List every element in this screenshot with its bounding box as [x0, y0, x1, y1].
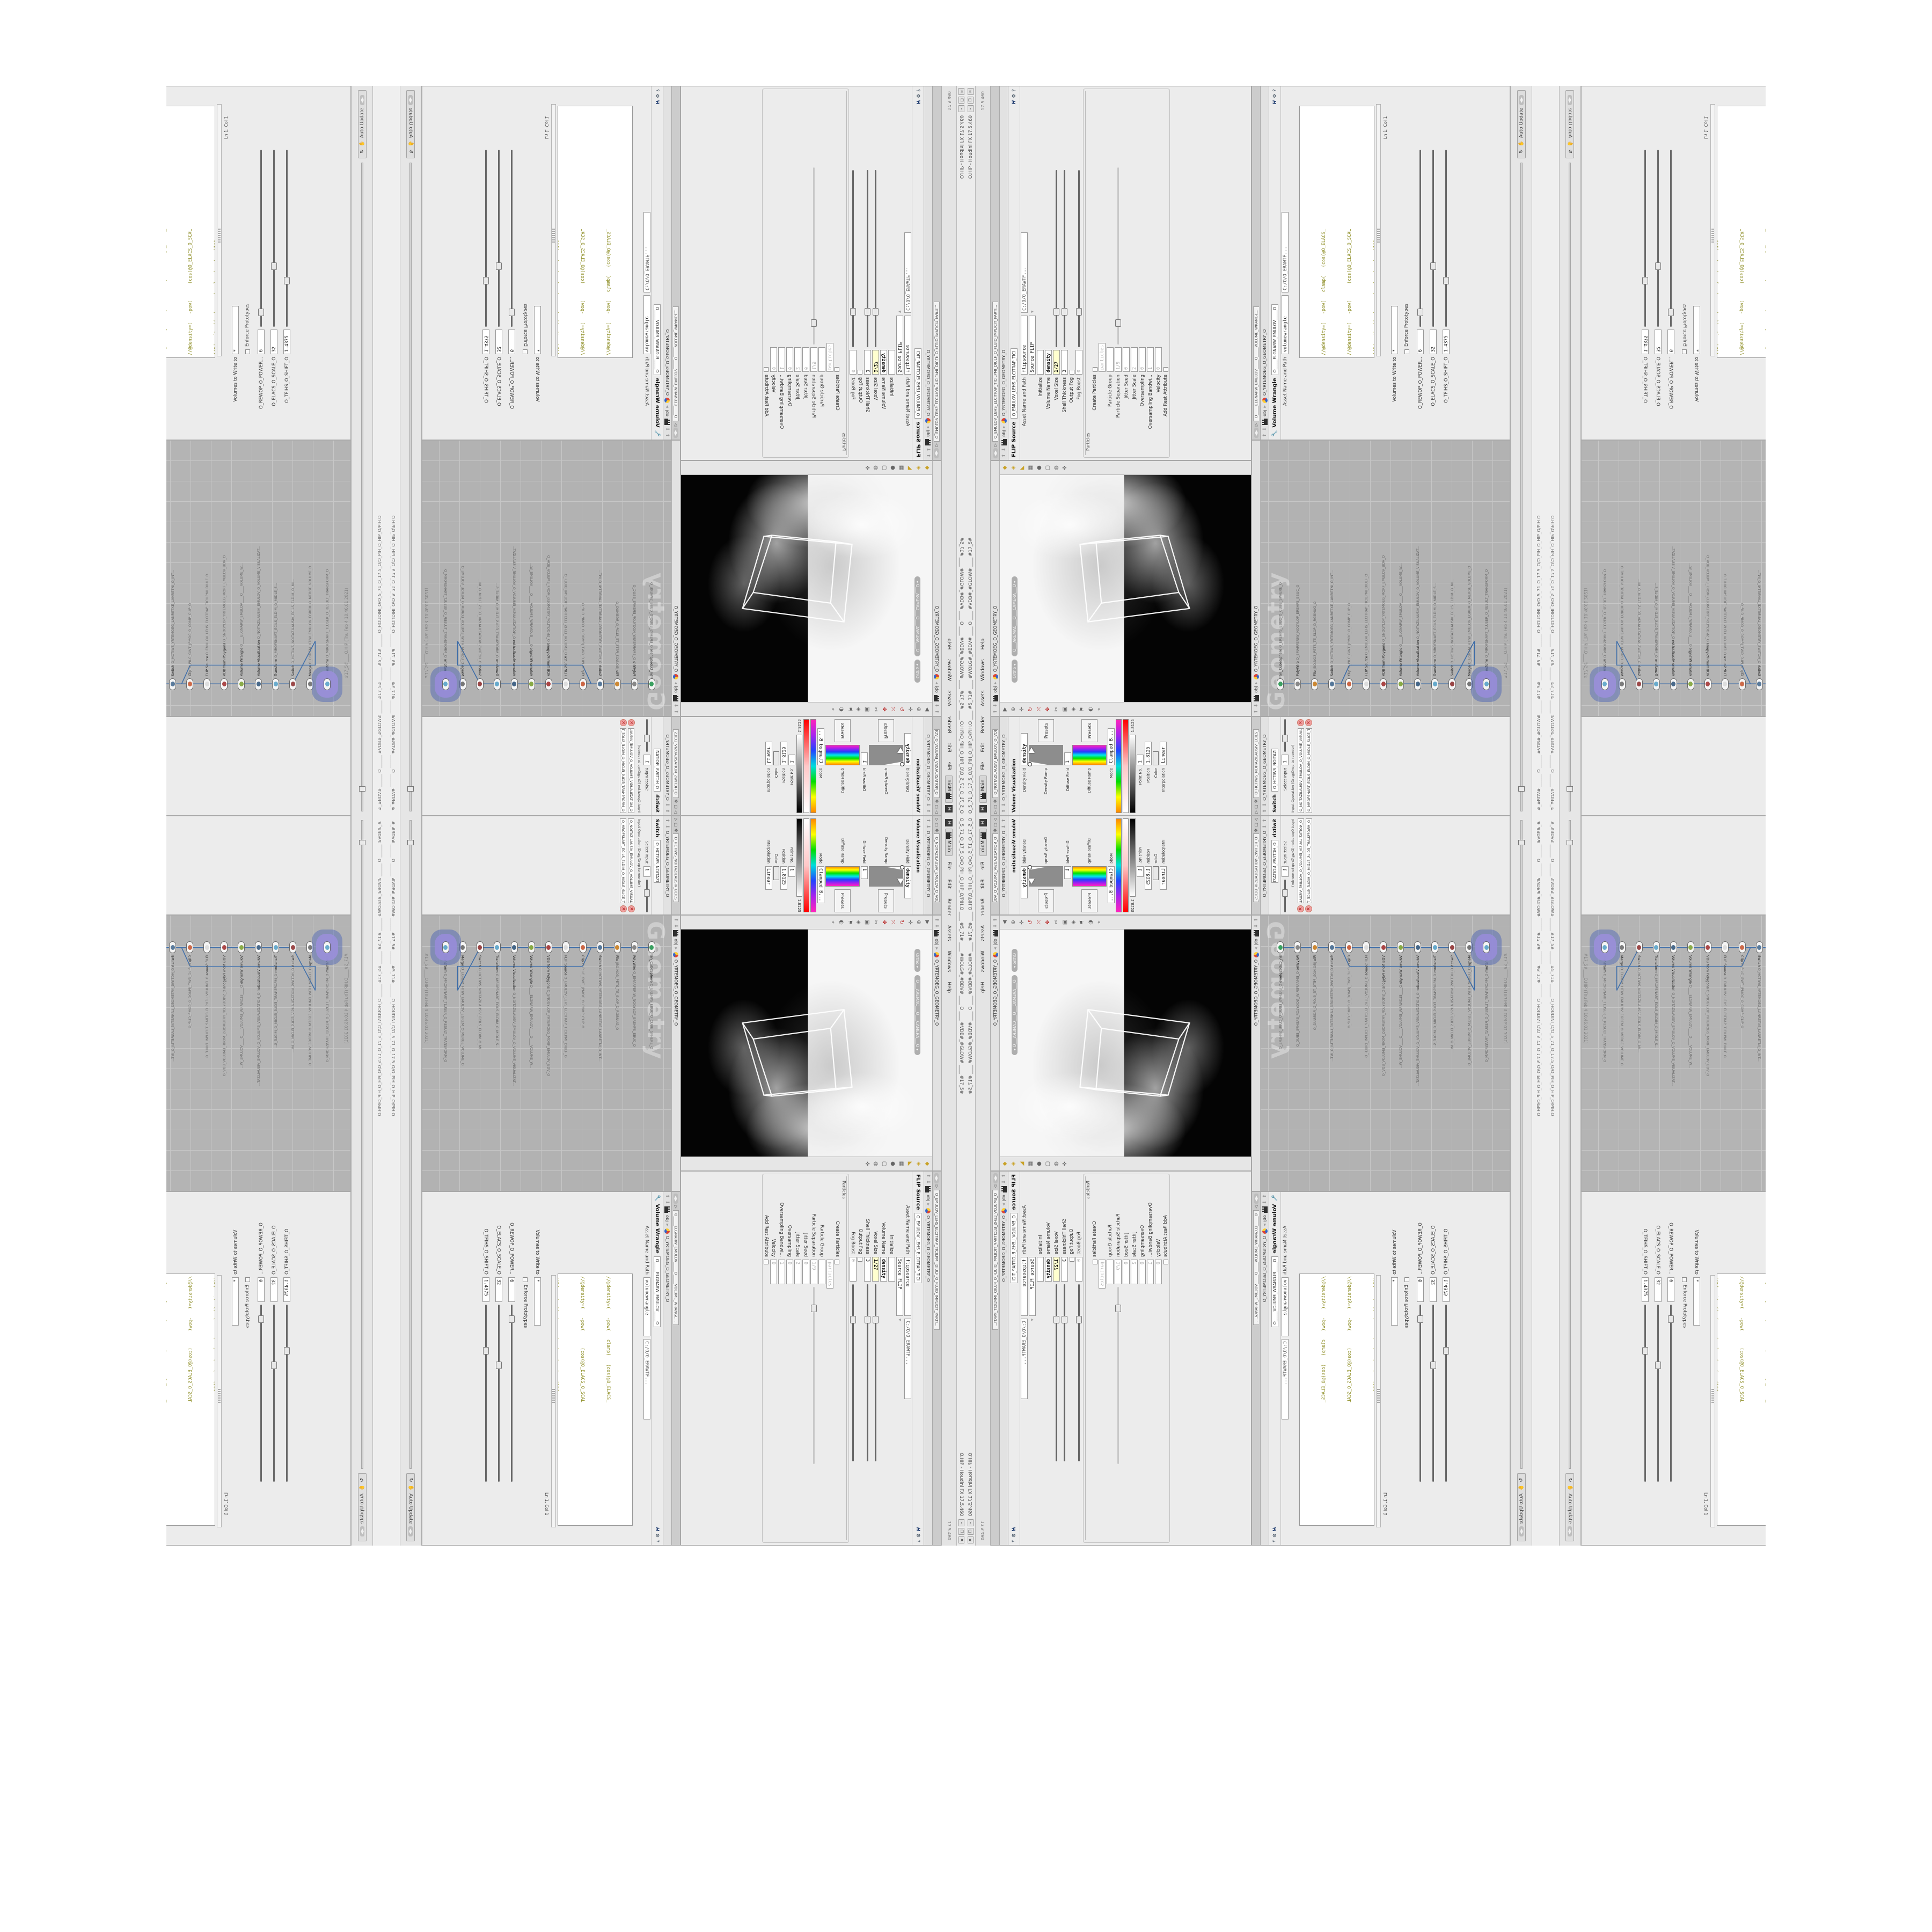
particles-section-label[interactable]: Particles [1085, 91, 1091, 455]
viz-path[interactable]: O_YRTEMOEG_O_GEOMETRY_O [926, 734, 931, 800]
param-value-field[interactable]: 0 [1123, 1260, 1130, 1284]
network-node[interactable]: Switch O_HCTIWS_YRTEMOEG_LANRETXE_LANRET… [169, 941, 176, 1062]
viewport-tool-icon[interactable]: ✥ [881, 920, 887, 924]
timeline-handle[interactable] [359, 786, 365, 792]
desktop-selector[interactable]: Main [979, 829, 987, 856]
window-button[interactable]: ✕ [958, 1536, 964, 1543]
node-shape[interactable] [203, 678, 210, 690]
viewport-tool-icon[interactable]: ▣ [1062, 707, 1068, 712]
node-shape[interactable] [272, 941, 279, 953]
menu-item[interactable]: File [946, 758, 953, 773]
shift-slider[interactable] [286, 1305, 288, 1482]
param-value-field[interactable]: 1/9 [810, 347, 817, 372]
switch-path[interactable]: O_YRTEMOEG_O_GEOMETRY_O [665, 831, 670, 897]
network-node[interactable]: Switch O_HCTIWS_NOITAZILAUSIV_ECILS_ELDI… [1636, 579, 1643, 690]
flip-crumb-root[interactable]: obj [1001, 1195, 1006, 1201]
network-node[interactable]: Transform O_MROFSNART_TLUSER_O_RESULT_TR… [1483, 569, 1490, 690]
asset-name-field[interactable]: flipsource [904, 1257, 911, 1316]
position-value[interactable]: 1.8125 [1145, 866, 1152, 890]
help-icon[interactable]: ? [655, 89, 660, 92]
density-field-value[interactable]: density [1021, 866, 1028, 898]
gear-icon[interactable]: ⚙ [655, 1533, 660, 1538]
pane-play-icon[interactable]: ▷ [674, 423, 679, 426]
viewport-display-icon[interactable]: ◆ [924, 466, 930, 470]
auto-update-button[interactable]: ↻ ✋ Auto Update ◀▶ [1566, 90, 1575, 158]
switch-input-name[interactable]: O_NOITAZILAUSIV_EMULOV_O_VOLUME_VISUALIZ… [1298, 728, 1304, 813]
network-node[interactable]: VDB from Polygons O_SNOGYLOP_YRTEMOEG_MO… [221, 555, 228, 690]
viewport-tool-icon[interactable]: ⚑ [1079, 920, 1085, 925]
ortho-pill[interactable]: Ortho ▾ [1012, 949, 1018, 972]
viewport-display-icon[interactable]: ◍ [1053, 465, 1059, 470]
timeline-slider[interactable] [361, 163, 363, 811]
switch-input-name[interactable]: O_NOITAZILAUSIV_EMULOV_O_VOLUME_VISUALIZ… [1298, 818, 1304, 903]
param-value-field[interactable]: 0 [1075, 350, 1082, 375]
wrangle-crumb-root[interactable]: obj [1262, 410, 1267, 416]
timeline-slider[interactable] [1520, 820, 1523, 1469]
diffuse-field-value[interactable]: 1 [1064, 752, 1071, 765]
delete-input-icon[interactable]: ✕ [620, 719, 627, 726]
network-canvas[interactable]: Geometry an_CubeSphere O_EREHPS_EBUC_O_C… [422, 916, 671, 1191]
network-node[interactable]: Transform O_MROFSNART_TLUSER_O_RESULT_TR… [324, 941, 331, 1062]
shift-slider[interactable] [286, 150, 288, 327]
timeline-handle[interactable] [1567, 786, 1574, 792]
viewport-display-icon[interactable]: ● [890, 465, 896, 470]
wrangle-header-tab[interactable]: O_____ELGNARW_EMULOV_____O [654, 304, 661, 375]
network-node[interactable]: Switch O_HCTIWS_YRTEMOEG_LANRETXE_LANRET… [169, 570, 176, 690]
up-arrow-icon[interactable]: ⬆ [934, 918, 940, 922]
gear-icon[interactable]: ⚙ [916, 94, 921, 98]
viewport-display-icon[interactable]: ◆ [924, 1162, 930, 1166]
viewport-tool-icon[interactable]: ◐ [1088, 707, 1094, 712]
param-value-field[interactable]: 0 [802, 1260, 809, 1284]
node-shape[interactable] [1670, 941, 1677, 953]
asset-name-field[interactable]: flipsource [1021, 1257, 1028, 1316]
vex-code-editor[interactable]: //@density=( -pow( clamp( (cos(@O_ELACS_… [558, 106, 633, 358]
network-node[interactable]: Clip O_PILC_GWT_JPMOC_O_COMP_CLIP_O [580, 941, 587, 1028]
network-node[interactable]: Clip O_PILC_GWT_JPMOC_O_COMP_CLIP_O [1739, 941, 1746, 1028]
param-value-field[interactable]: density [1045, 1257, 1052, 1282]
delete-input-icon[interactable]: ✕ [1297, 719, 1304, 726]
network-node[interactable]: PolyWire O_EMARFERIW_NOGYLOP_EREHPS_EBUC… [631, 585, 638, 691]
viewport-tool-icon[interactable]: ▶ [1002, 920, 1008, 925]
shift-slider[interactable] [485, 150, 487, 327]
node-shape[interactable] [562, 941, 569, 953]
diffuse-presets-button[interactable]: Presets [1081, 719, 1097, 742]
param-value-field[interactable]: 1 [1147, 347, 1154, 372]
network-node[interactable]: Clip O_PILC_GWT_JPMOC_O_COMP_CLIP_O [1345, 941, 1352, 1028]
viewport-tool-icon[interactable]: ⊕ [916, 707, 921, 711]
power-value[interactable]: 6 [1667, 330, 1674, 354]
node-shape[interactable] [511, 941, 518, 953]
node-shape[interactable] [1687, 678, 1694, 690]
code-scrollbar[interactable] [551, 104, 556, 356]
power-slider[interactable] [511, 1305, 513, 1482]
pane-link-pill[interactable]: ◀▶ [993, 448, 998, 458]
viewport-tool-icon[interactable]: ✛ [907, 707, 913, 711]
up-arrow-icon[interactable]: ⬆ [993, 918, 998, 922]
wrangle-crumb-root[interactable]: obj [665, 410, 670, 416]
auto-update-button[interactable]: ↻ ✋ Auto Update ◀▶ [358, 90, 367, 158]
enforce-checkbox[interactable] [1682, 349, 1687, 354]
help-icon[interactable]: ? [916, 89, 921, 92]
viewport-tool-icon[interactable]: ⤧ [890, 920, 896, 925]
point-value[interactable]: 1 [788, 866, 795, 877]
help-icon[interactable]: ? [1272, 89, 1278, 92]
desktop-selector[interactable]: Main [946, 776, 953, 803]
viewport-tool-icon[interactable]: ▣ [1062, 920, 1068, 925]
viewport-tool-icon[interactable]: ⊕ [1011, 920, 1016, 924]
param-value-field[interactable]: 1/27 [872, 1257, 879, 1282]
viewport-tool-icon[interactable]: ⚑ [847, 707, 853, 712]
network-node[interactable]: PolyWire O_EMARFERIW_NOGYLOP_EREHPS_EBUC… [1294, 941, 1301, 1047]
node-shape[interactable] [614, 941, 621, 953]
pane-move-icon[interactable]: ✥ [1254, 800, 1259, 803]
scale-slider[interactable] [1657, 150, 1659, 327]
down-arrow-icon[interactable]: ⬇ [1001, 825, 1007, 829]
gradient-grayscale[interactable] [796, 735, 802, 814]
viewport-tool-icon[interactable]: ⌖ [1096, 708, 1102, 711]
down-arrow-icon[interactable]: ⬇ [926, 1180, 931, 1184]
node-shape[interactable] [1636, 941, 1643, 953]
viz-pane-tab[interactable]: O_NOITAZILAUSIV_EMULOV_O_VOLUME_VISUALIZ… [992, 833, 998, 902]
delete-input-icon[interactable]: ✕ [1297, 905, 1304, 912]
viewport-tool-icon[interactable]: ↻ [898, 920, 904, 924]
node-shape[interactable] [169, 678, 176, 690]
timeline-slider[interactable] [361, 820, 363, 1469]
up-arrow-icon[interactable]: ⬆ [1254, 918, 1259, 922]
viewport-tool-icon[interactable]: ⤧ [1036, 920, 1042, 925]
diffuse-presets-button[interactable]: Presets [1081, 889, 1097, 912]
position-value[interactable]: 1.8125 [780, 866, 787, 890]
param-slider[interactable] [1064, 170, 1065, 347]
switch-path[interactable]: O_YRTEMOEG_O_GEOMETRY_O [1262, 734, 1267, 800]
shift-value[interactable]: 1.4375 [1642, 1277, 1649, 1302]
density-field-value[interactable]: density [904, 866, 911, 898]
gradient-rainbow[interactable] [810, 818, 816, 912]
scale-slider[interactable] [273, 150, 275, 327]
down-arrow-icon[interactable]: ⬇ [674, 704, 679, 708]
param-value-field[interactable] [1107, 1260, 1114, 1284]
window-button[interactable]: – [958, 1519, 964, 1526]
pane-play-icon[interactable]: ▷ [993, 810, 998, 814]
viewport-display-icon[interactable]: ◍ [873, 465, 879, 470]
node-shape[interactable] [1722, 678, 1729, 690]
pane-play-icon[interactable]: ▷ [993, 818, 998, 821]
switch-header-tab[interactable]: O_HCTIWS_NOITAZILAUSIV... [1271, 840, 1278, 883]
switch-pane-tab[interactable]: O_HCTIWS_NOITAZILAUSIV_ECILS_ELDIM_O_MI.… [1253, 729, 1259, 797]
menu-item[interactable]: Windows [946, 655, 953, 684]
up-arrow-icon[interactable]: ⬆ [665, 433, 670, 437]
node-shape[interactable] [255, 941, 262, 953]
scale-value[interactable]: 32 [495, 1277, 502, 1302]
viewport-tool-icon[interactable]: ✥ [1045, 707, 1051, 711]
node-shape[interactable] [1448, 678, 1455, 690]
viz-pane-tab[interactable]: O_NOITAZILAUSIV_EMULOV_O_VOLUME_VISUALIZ… [934, 729, 940, 797]
power-value[interactable]: 6 [258, 330, 265, 354]
viewport-tool-icon[interactable]: ✛ [1019, 920, 1025, 924]
up-arrow-icon[interactable]: ⬆ [993, 709, 998, 714]
code-scrollbar[interactable] [1376, 1275, 1381, 1527]
up-arrow-icon[interactable]: ⬆ [1262, 433, 1268, 437]
node-shape[interactable] [306, 678, 313, 690]
shift-value[interactable]: 1.4375 [283, 1277, 290, 1302]
help-icon[interactable]: ? [655, 1540, 660, 1542]
color-swatch[interactable] [1153, 866, 1159, 880]
network-canvas[interactable]: Geometry an_CubeSphere O_EREHPS_EBUC_O_C… [1261, 441, 1510, 716]
volumes-value[interactable]: * [232, 1277, 239, 1326]
switch-input-name[interactable]: O_NOITAZILAUSIV_EMULOV_O_VOLUME_VISUALIZ… [628, 728, 635, 813]
viewport-path[interactable]: O_YRTEMOEG_O_GEOMETRY_O [993, 606, 998, 672]
network-node[interactable]: Volume Wrangle O____ELGNARW_EMULOV____O_… [1397, 941, 1404, 1068]
node-shape[interactable] [272, 678, 279, 690]
viewport-tool-icon[interactable]: ⌖ [1096, 921, 1102, 924]
auto-update-button[interactable]: ↻ ✋ Auto Update ◀▶ [1517, 1473, 1526, 1541]
viewport-tool-icon[interactable]: ⚑ [1079, 707, 1085, 712]
node-shape[interactable] [528, 678, 535, 690]
wrangle-header-tab[interactable]: O_____ELGNARW_EMULOV_____O [654, 1256, 661, 1327]
param-value-field[interactable]: 0 [1139, 347, 1146, 372]
shift-value[interactable]: 1.4375 [1443, 1277, 1450, 1302]
auto-update-button[interactable]: ↻ ✋ Auto Update ◀▶ [1517, 90, 1526, 158]
menu-item[interactable]: Windows [979, 655, 987, 684]
asset-name-field[interactable]: flipsource [904, 316, 911, 375]
viewport-display-icon[interactable]: ✜ [1062, 1161, 1068, 1166]
node-shape[interactable] [459, 941, 466, 953]
viewport-display-icon[interactable]: ▦ [1028, 465, 1034, 470]
viewport-display-icon[interactable]: ▢ [1045, 465, 1051, 470]
node-shape[interactable] [1294, 941, 1301, 953]
viewport-display-icon[interactable]: ✜ [864, 465, 870, 470]
network-node[interactable]: Volume Wrangle O____ELGNARW_EMULOV____O_… [238, 941, 245, 1068]
point-value[interactable]: 1 [1137, 866, 1144, 877]
switch-header-tab[interactable]: O_HCTIWS_NOITAZILAUSIV... [654, 840, 661, 883]
mode-value[interactable]: Clamped B... [817, 728, 824, 765]
node-shape[interactable] [1363, 941, 1370, 953]
network-node[interactable]: Switch O_HCTIWS_YRTEMOEG_LANRETXE_LANRET… [597, 570, 604, 690]
power-slider[interactable] [260, 150, 262, 327]
up-arrow-icon[interactable]: ⬆ [1001, 1174, 1007, 1178]
flip-pane-tab[interactable]: O_EMULOV_LEHS_ELCITRAP_TICILPMI_DIULF_O_… [934, 302, 940, 442]
network-node[interactable]: File JBO.NO3_PETS_TE_SLOP_D_RGBNUG_O [614, 602, 621, 690]
interp-value[interactable]: Linear [1160, 742, 1167, 765]
interp-value[interactable]: Linear [765, 866, 772, 890]
network-node[interactable]: Volume Visualization O_NOITAZILAUSIV_EMU… [255, 941, 262, 1086]
flip-pane-tab[interactable]: O_EMULOV_LEHS_ELCITRAP_TICILPMI_DIULF_O_… [934, 1190, 940, 1330]
up-arrow-icon[interactable]: ⬆ [926, 818, 931, 823]
node-shape[interactable] [1636, 678, 1643, 690]
pane-play-icon[interactable]: ▷ [993, 443, 998, 447]
menu-item[interactable]: Assets [946, 921, 953, 945]
menu-item[interactable]: File [946, 858, 953, 874]
asset-path-field[interactable]: C:/O/O_ERAWTF... [1021, 1319, 1028, 1399]
network-node[interactable]: Merge O_EGREM_HTIW_EMULOV_EGREM_O_MERGE_… [1619, 566, 1626, 690]
network-node[interactable]: Merge O_EGREM_HTIW_EMULOV_EGREM_O_MERGE_… [459, 941, 466, 1066]
network-node[interactable]: FLIP Source O_EMULOV_LEHS_ELCITRAP_TICIL… [1722, 941, 1729, 1058]
down-arrow-icon[interactable]: ⬇ [993, 704, 998, 708]
param-slider[interactable] [852, 170, 854, 347]
gradient-red[interactable] [1123, 818, 1129, 912]
timeline-slider[interactable] [1569, 820, 1571, 1469]
volumes-value[interactable]: * [534, 1277, 541, 1326]
node-shape[interactable] [631, 678, 638, 690]
param-value-field[interactable]: density [880, 350, 887, 375]
network-node[interactable]: Transform O_MROFSNART_ECILS_ELDIM_O_MIDL… [494, 583, 501, 690]
menu-item[interactable]: Edit [979, 876, 987, 892]
volumes-value[interactable]: * [534, 306, 541, 354]
flip-path[interactable]: O_YRTEMOEG_O_GEOMETRY_O [926, 350, 931, 416]
param-value-field[interactable]: particles [1099, 1260, 1106, 1289]
up-arrow-icon[interactable]: ⬆ [1262, 818, 1268, 823]
asset-name-field[interactable]: flipsource [1021, 316, 1028, 375]
network-node[interactable]: Switch O_HCTIWS_NOITAZILAUSIV_ECILS_ELDI… [477, 941, 484, 1052]
param-value-field[interactable] [1107, 347, 1114, 372]
wrangle-path[interactable]: O_YRTEMOEG_O_GEOMETRY_O [1262, 1236, 1267, 1302]
mode-value[interactable]: Clamped B... [1108, 866, 1115, 903]
viewport-tool-icon[interactable]: ⌖ [830, 921, 836, 924]
delete-input-icon[interactable]: ✕ [628, 905, 635, 912]
param-value-field[interactable] [888, 350, 895, 375]
wrangle-header-tab[interactable]: O_____ELGNARW_EMULOV_____O [1271, 304, 1278, 375]
network-node[interactable]: File JBO.NO3_PETS_TE_SLOP_D_RGBNUG_O [1311, 602, 1318, 690]
window-button[interactable]: ✕ [958, 88, 964, 95]
menu-item[interactable]: Edit [979, 739, 987, 756]
pane-split-icon[interactable]: ▢ [993, 804, 998, 809]
menu-item[interactable]: Render [979, 712, 987, 737]
color-swatch[interactable] [773, 751, 779, 765]
param-slider[interactable] [867, 1284, 868, 1461]
gear-icon[interactable]: ⚙ [1272, 94, 1278, 98]
param-value-field[interactable] [818, 1260, 825, 1284]
node-shape[interactable] [648, 941, 655, 953]
param-value-field[interactable]: 1 [1147, 1260, 1154, 1284]
timeline-slider[interactable] [1569, 163, 1571, 811]
volumes-value[interactable]: * [1693, 306, 1700, 354]
node-shape[interactable] [255, 678, 262, 690]
menu-item[interactable]: Windows [946, 947, 953, 976]
asset-path-field[interactable]: C:/O/O_ERAWTF... [904, 1319, 911, 1399]
scale-value[interactable]: 32 [495, 330, 502, 354]
gradient-grayscale[interactable] [1130, 818, 1136, 897]
menu-item[interactable]: Help [946, 635, 953, 654]
window-button[interactable]: – [968, 105, 974, 112]
flip-pane-tab[interactable]: O_EMULOV_LEHS_ELCITRAP_TICILPMI_DIULF_O_… [992, 302, 998, 442]
up-arrow-icon[interactable]: ⬆ [926, 1174, 931, 1178]
timeline-handle[interactable] [408, 786, 414, 792]
down-arrow-icon[interactable]: ⬇ [665, 1201, 670, 1205]
timeline-slider[interactable] [410, 820, 412, 1469]
viewport-display-icon[interactable]: ▦ [1028, 1161, 1034, 1166]
pane-play-icon[interactable]: ▷ [934, 810, 940, 814]
vex-code-editor[interactable]: //@density=( -pow( clamp( (cos(@O_ELACS_… [1717, 106, 1766, 358]
flip-path[interactable]: O_YRTEMOEG_O_GEOMETRY_O [926, 1216, 931, 1282]
flip-path[interactable]: O_YRTEMOEG_O_GEOMETRY_O [1001, 350, 1006, 416]
param-value-field[interactable]: 1/9 [1115, 1260, 1122, 1284]
viewport-display-icon[interactable]: ▢ [881, 1161, 887, 1166]
pane-link-pill[interactable]: ◀▶ [993, 1173, 998, 1183]
network-node[interactable]: Clip O_PILC_GWT_JPMOC_O_COMP_CLIP_O [1739, 603, 1746, 690]
up-arrow-icon[interactable]: ⬆ [1001, 809, 1007, 813]
pane-play-icon[interactable]: ▷ [1254, 810, 1259, 814]
pane-split-icon[interactable]: ▢ [1254, 823, 1259, 827]
viewport-tool-icon[interactable]: ◈ [855, 707, 861, 712]
network-node[interactable]: Switch O_HCTIWS_NOITAZILAUSIV_ECILS_ELDI… [289, 941, 296, 1052]
viewport-crumb-root[interactable]: obj [993, 939, 998, 945]
pane-link-pill[interactable]: ◀▶ [1254, 428, 1258, 438]
param-value-field[interactable]: 0 [770, 347, 777, 372]
select-input-value[interactable]: 1 [643, 866, 650, 877]
node-shape[interactable] [1687, 941, 1694, 953]
network-node[interactable]: an_CubeSphere O_EREHPS_EBUC_O_CUBE_SPHER… [648, 941, 655, 1049]
param-value-field[interactable]: 3 [864, 1257, 871, 1282]
gradient-red[interactable] [803, 719, 809, 813]
up-arrow-icon[interactable]: ⬆ [665, 1194, 670, 1198]
node-shape[interactable] [1756, 941, 1763, 953]
network-node[interactable]: VDB from Polygons O_SNOGYLOP_YRTEMOEG_MO… [1380, 555, 1387, 690]
switch-header-tab[interactable]: O_HCTIWS_NOITAZILAUSIV... [654, 749, 661, 792]
network-node[interactable]: Clip O_PILC_GWT_JPMOC_O_COMP_CLIP_O [1345, 603, 1352, 690]
power-slider[interactable] [1670, 150, 1672, 327]
pane-split-icon[interactable]: ▢ [674, 823, 679, 827]
viewport-tool-icon[interactable]: ↻ [1028, 707, 1034, 711]
vex-code-editor[interactable]: //@density=( -pow( clamp( (cos(@O_ELACS_… [1299, 1274, 1374, 1526]
network-node[interactable]: Transform O_MROFSNART_TLUSER_O_RESULT_TR… [442, 569, 449, 690]
viewport-tool-icon[interactable]: ✂ [1053, 707, 1059, 711]
flip-header-tab[interactable]: O_EMULOV_LEHS_ELCITRAP_TICI [914, 1213, 921, 1283]
node-shape[interactable] [186, 678, 193, 690]
volumes-value[interactable]: * [1391, 306, 1398, 354]
network-canvas[interactable]: Geometry an_CubeSphere O_EREHPS_EBUC_O_C… [166, 916, 350, 1191]
node-shape[interactable] [614, 678, 621, 690]
desktop-selector[interactable]: Main [979, 776, 987, 803]
param-slider[interactable] [867, 170, 868, 347]
pane-play-icon[interactable]: ▷ [993, 1185, 998, 1188]
network-node[interactable]: Merge O_EGREM_HTIW_EMULOV_EGREM_O_MERGE_… [306, 566, 313, 690]
network-node[interactable]: Clip O_PILC_GWT_JPMOC_O_COMP_CLIP_O [580, 603, 587, 690]
scale-value[interactable]: 32 [1655, 1277, 1662, 1302]
network-node[interactable]: Transform O_MROFSNART_ECILS_ELDIM_O_MIDL… [1653, 583, 1660, 690]
viewport-display-icon[interactable]: ✜ [864, 1161, 870, 1166]
node-shape[interactable] [1466, 678, 1473, 690]
power-slider[interactable] [260, 1305, 262, 1482]
node-shape[interactable] [324, 941, 331, 953]
node-shape[interactable] [221, 941, 228, 953]
menu-item[interactable]: Help [946, 978, 953, 997]
network-canvas[interactable]: Geometry an_CubeSphere O_EREHPS_EBUC_O_C… [1582, 441, 1766, 716]
param-value-field[interactable]: 0 [786, 1260, 793, 1284]
network-node[interactable]: Volume Visualization O_NOITAZILAUSIV_EMU… [1670, 546, 1677, 690]
param-slider[interactable] [1056, 170, 1057, 347]
param-value-field[interactable]: 1/27 [872, 350, 879, 375]
select-input-value[interactable]: 1 [643, 755, 650, 765]
network-node[interactable]: Merge O_EGREM_HTIW_EMULOV_EGREM_O_MERGE_… [459, 566, 466, 690]
down-arrow-icon[interactable]: ⬇ [1001, 803, 1007, 807]
network-node[interactable]: Transform O_MROFSNART_TLUSER_O_RESULT_TR… [1601, 569, 1608, 690]
viewport-display-icon[interactable]: ● [1036, 465, 1042, 470]
camera-pill[interactable]: O___AREMAC___O___CAMERA___O ▾ [1012, 975, 1018, 1055]
param-value-field[interactable]: 0 [1139, 1260, 1146, 1284]
ramp-handle-end[interactable] [1028, 879, 1035, 887]
power-slider[interactable] [1419, 1305, 1421, 1482]
position-value[interactable]: 1.8125 [1145, 742, 1152, 765]
viewport-crumb-root[interactable]: obj [993, 686, 998, 693]
network-node[interactable]: Clip O_PILC_GWT_JPMOC_O_COMP_CLIP_O [186, 941, 193, 1028]
network-node[interactable]: Merge O_EGREM_HTIW_EMULOV_EGREM_O_MERGE_… [306, 941, 313, 1066]
node-shape[interactable] [1483, 678, 1490, 690]
ortho-pill[interactable]: Ortho ▾ [1012, 660, 1018, 683]
network-node[interactable]: Transform O_MROFSNART_ECILS_ELDIM_O_MIDL… [272, 583, 279, 690]
node-shape[interactable] [1380, 678, 1387, 690]
network-node[interactable]: Volume Visualization O_NOITAZILAUSIV_EMU… [1414, 546, 1421, 690]
